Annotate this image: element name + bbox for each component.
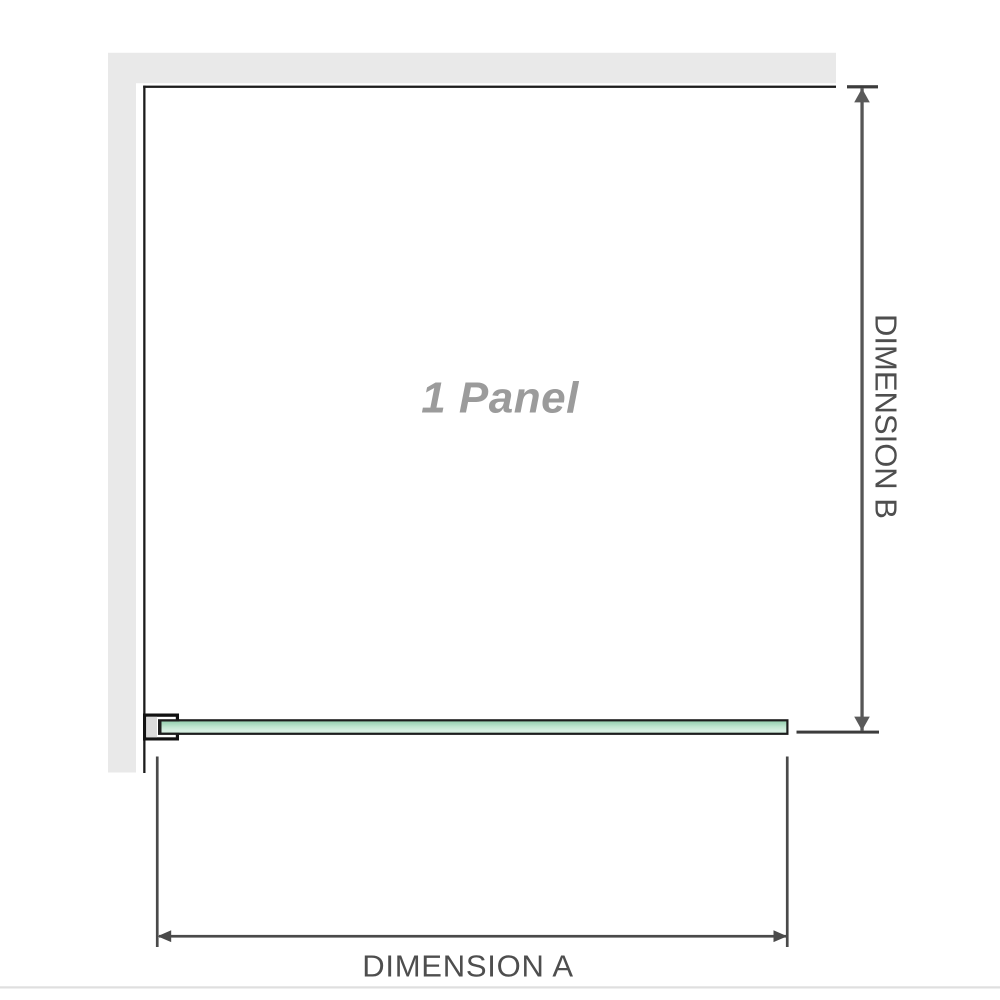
svg-text:1 Panel: 1 Panel bbox=[421, 374, 579, 423]
svg-text:DIMENSION A: DIMENSION A bbox=[362, 949, 574, 984]
svg-text:DIMENSION B: DIMENSION B bbox=[868, 314, 903, 519]
